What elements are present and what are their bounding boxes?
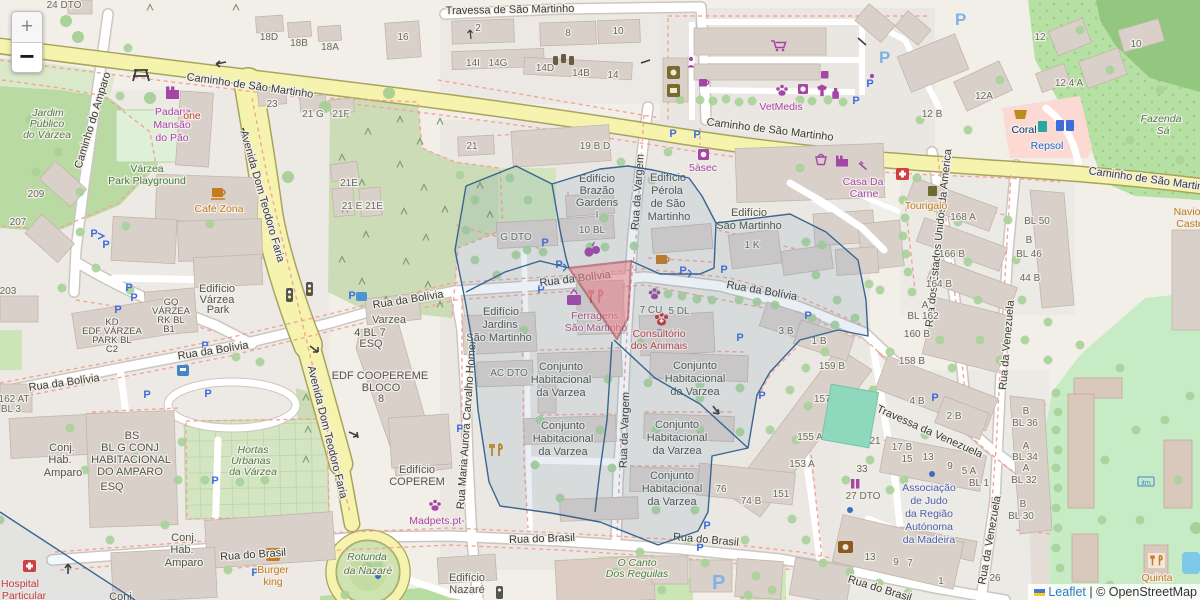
- svg-text:Navio: Navio: [1174, 206, 1200, 218]
- svg-text:14B: 14B: [572, 68, 590, 79]
- svg-text:14G: 14G: [489, 58, 508, 69]
- svg-text:BL 32: BL 32: [1011, 475, 1037, 486]
- svg-text:Edifício: Edifício: [399, 464, 435, 476]
- svg-text:160 B: 160 B: [904, 329, 930, 340]
- svg-text:153 A: 153 A: [789, 459, 815, 470]
- svg-text:Autónoma: Autónoma: [905, 521, 953, 533]
- svg-text:19 B D: 19 B D: [580, 141, 611, 152]
- svg-text:Associação: Associação: [902, 482, 956, 494]
- svg-text:Café Zona: Café Zona: [194, 203, 243, 215]
- svg-text:21 G: 21 G: [302, 109, 324, 120]
- svg-text:74 B: 74 B: [741, 496, 762, 507]
- svg-text:BL 46: BL 46: [1016, 249, 1042, 260]
- svg-text:27 DTO: 27 DTO: [846, 491, 881, 502]
- svg-text:158 B: 158 B: [899, 356, 925, 367]
- svg-text:44 B: 44 B: [1020, 273, 1041, 284]
- svg-text:26: 26: [989, 573, 1001, 584]
- svg-text:Burger: Burger: [257, 564, 289, 576]
- svg-text:Conj.: Conj.: [49, 442, 75, 454]
- svg-text:21: 21: [869, 436, 881, 447]
- svg-text:Amparo: Amparo: [44, 467, 83, 479]
- svg-text:do Pão: do Pão: [155, 132, 188, 144]
- svg-text:BL 162: BL 162: [907, 311, 939, 322]
- svg-text:1 B: 1 B: [811, 336, 826, 347]
- svg-text:Fazenda: Fazenda: [1141, 113, 1182, 125]
- svg-text:Hab.: Hab.: [170, 544, 193, 556]
- svg-text:18D: 18D: [260, 32, 278, 43]
- svg-text:159 B: 159 B: [819, 361, 845, 372]
- svg-text:itm: itm: [1141, 480, 1151, 487]
- svg-text:A: A: [922, 300, 929, 311]
- svg-text:BL 3: BL 3: [1, 404, 22, 415]
- svg-text:166 B: 166 B: [939, 249, 965, 260]
- svg-text:12 4 A: 12 4 A: [1055, 78, 1084, 89]
- svg-text:14: 14: [607, 70, 619, 81]
- svg-text:21E: 21E: [365, 201, 383, 212]
- svg-text:9: 9: [947, 461, 953, 472]
- svg-text:Casa Da: Casa Da: [843, 176, 884, 188]
- svg-text:P: P: [712, 572, 725, 594]
- svg-text:33: 33: [856, 464, 868, 475]
- svg-text:5 A: 5 A: [962, 466, 977, 477]
- svg-text:13: 13: [922, 452, 934, 463]
- svg-text:155 A: 155 A: [797, 432, 823, 443]
- svg-text:Repsol: Repsol: [1031, 140, 1064, 152]
- svg-text:Travessa de São Martinho: Travessa de São Martinho: [446, 3, 575, 17]
- svg-text:ESQ: ESQ: [100, 481, 124, 493]
- svg-text:EDF COOPEREME: EDF COOPEREME: [332, 370, 429, 382]
- svg-text:Park Playground: Park Playground: [108, 175, 186, 187]
- svg-text:HABITACIONAL: HABITACIONAL: [91, 454, 171, 466]
- svg-text:207: 207: [10, 217, 27, 228]
- svg-text:A: A: [1023, 463, 1030, 474]
- svg-text:1: 1: [938, 576, 944, 587]
- svg-text:da Várzea: da Várzea: [229, 466, 277, 478]
- svg-text:BL 50: BL 50: [1024, 216, 1050, 227]
- svg-text:10: 10: [612, 26, 624, 37]
- svg-text:18B: 18B: [290, 38, 308, 49]
- svg-text:21: 21: [466, 141, 478, 152]
- svg-text:de Judo: de Judo: [910, 495, 948, 507]
- svg-text:da Madeira: da Madeira: [903, 534, 956, 546]
- svg-text:Carne: Carne: [850, 188, 879, 200]
- svg-text:21 E: 21 E: [342, 201, 363, 212]
- svg-text:12: 12: [1034, 32, 1046, 43]
- svg-text:king: king: [263, 576, 282, 588]
- svg-text:B: B: [1026, 235, 1033, 246]
- svg-text:15: 15: [901, 454, 913, 465]
- svg-text:5àsec: 5àsec: [689, 162, 717, 174]
- svg-text:164 B: 164 B: [926, 279, 952, 290]
- svg-text:C2: C2: [106, 344, 118, 355]
- svg-text:151: 151: [773, 489, 790, 500]
- svg-text:Caste: Caste: [1176, 218, 1200, 230]
- svg-text:2: 2: [475, 23, 481, 34]
- svg-text:76: 76: [715, 484, 727, 495]
- svg-text:10: 10: [1130, 39, 1142, 50]
- svg-text:Edifício: Edifício: [449, 572, 485, 584]
- svg-text:23: 23: [266, 99, 278, 110]
- svg-text:Várzea: Várzea: [130, 163, 163, 175]
- svg-text:Varzea: Varzea: [372, 314, 407, 326]
- svg-text:Quinta: Quinta: [1142, 572, 1173, 584]
- svg-text:24 DTO: 24 DTO: [47, 0, 82, 11]
- svg-text:COPEREM: COPEREM: [389, 476, 445, 488]
- svg-text:8: 8: [565, 28, 571, 39]
- svg-text:Dos Reguilas: Dos Reguilas: [606, 568, 669, 580]
- svg-text:BL G CONJ: BL G CONJ: [101, 442, 159, 454]
- svg-text:Nazaré: Nazaré: [449, 584, 484, 596]
- svg-text:da Região: da Região: [905, 508, 953, 520]
- svg-text:12A: 12A: [975, 91, 993, 102]
- svg-text:BL 34: BL 34: [1012, 452, 1038, 463]
- svg-text:A: A: [1023, 441, 1030, 452]
- svg-text:P: P: [879, 48, 890, 67]
- svg-text:VetMedis: VetMedis: [759, 101, 802, 113]
- svg-text:ESQ: ESQ: [359, 338, 383, 350]
- svg-text:21F: 21F: [332, 109, 349, 120]
- svg-text:Conj.: Conj.: [171, 532, 197, 544]
- svg-text:Hab.: Hab.: [48, 454, 71, 466]
- svg-text:168 A: 168 A: [950, 212, 976, 223]
- svg-text:12 B: 12 B: [922, 109, 943, 120]
- svg-text:BL 30: BL 30: [1008, 511, 1034, 522]
- svg-text:209: 209: [28, 189, 45, 200]
- svg-text:Amparo: Amparo: [165, 557, 204, 569]
- svg-text:16: 16: [397, 32, 409, 43]
- svg-text:203: 203: [0, 286, 17, 297]
- svg-text:8: 8: [378, 393, 384, 405]
- svg-text:21E: 21E: [340, 178, 358, 189]
- svg-text:Madpets.pt-: Madpets.pt-: [409, 515, 465, 527]
- svg-text:Coral: Coral: [1011, 124, 1036, 136]
- svg-text:P: P: [955, 10, 966, 29]
- svg-text:BS: BS: [125, 430, 140, 442]
- svg-text:BL 1: BL 1: [969, 478, 990, 489]
- svg-text:13: 13: [864, 552, 876, 563]
- svg-text:9: 9: [893, 557, 899, 568]
- svg-text:17 B: 17 B: [892, 442, 913, 453]
- svg-text:Rotunda: Rotunda: [347, 551, 387, 563]
- svg-text:Sá: Sá: [1157, 125, 1170, 137]
- svg-text:DO AMPARO: DO AMPARO: [97, 466, 163, 478]
- svg-text:Tourigalo: Tourigalo: [905, 200, 948, 212]
- svg-text:do Várzea: do Várzea: [23, 129, 71, 141]
- svg-text:14D: 14D: [536, 63, 554, 74]
- svg-text:BL 36: BL 36: [1012, 418, 1038, 429]
- svg-text:4 B: 4 B: [909, 396, 924, 407]
- svg-text:B1: B1: [163, 324, 175, 335]
- svg-text:one: one: [183, 110, 201, 122]
- svg-text:7: 7: [907, 558, 913, 569]
- svg-text:2 B: 2 B: [946, 411, 961, 422]
- svg-text:14I: 14I: [466, 58, 480, 69]
- svg-text:18A: 18A: [321, 42, 339, 53]
- svg-text:Rua do Brasil: Rua do Brasil: [509, 532, 575, 546]
- svg-text:da Nazaré: da Nazaré: [344, 565, 393, 577]
- svg-text:B: B: [1020, 499, 1027, 510]
- svg-text:B: B: [1023, 406, 1030, 417]
